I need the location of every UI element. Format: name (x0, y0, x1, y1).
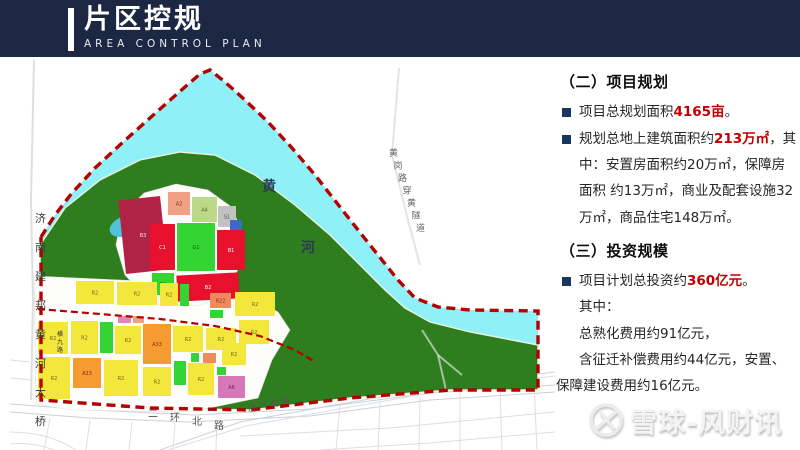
parcel-label: R2 (50, 336, 57, 342)
parcel-label: A23 (82, 371, 92, 377)
bullet-text: 。 (742, 273, 756, 289)
parcel-label: R2 (231, 352, 238, 358)
parcel-label: B3 (140, 233, 147, 239)
parcel-label: R2 (154, 380, 161, 386)
parcel-label: B1 (228, 248, 235, 254)
detail-line: 含征迁补偿费用约44亿元，安置、保障建设费用约16亿元。 (556, 347, 798, 400)
parcel-label: R2 (92, 291, 99, 297)
bullet-total-investment: 项目计划总投资约360亿元。 (562, 268, 798, 294)
map-label: 南 (35, 241, 46, 254)
map-label: 济 (35, 211, 46, 225)
section-heading-project-plan: （二）项目规划 (560, 68, 798, 97)
map-canvas: B3A2A4S1C1G1B1B2G1R2R2R2R22R2R2R2R2A33R2… (10, 60, 555, 450)
map-label: 建 (35, 269, 46, 283)
land-use-map: B3A2A4S1C1G1B1B2G1R2R2R2R22R2R2R2R2A33R2… (10, 60, 555, 450)
parcel-label: A2 (176, 202, 183, 208)
bullet-floor-area: 规划总地上建筑面积约213万㎡，其中：安置房面积约20万㎡，保障房面积 约13万… (562, 126, 798, 231)
bullet-total-area: 项目总规划面积4165亩。 (562, 99, 798, 125)
parcel-label: R2 (134, 292, 141, 298)
map-label: 广 (259, 401, 268, 412)
bridge-road (31, 60, 34, 400)
parcel-label: R2 (166, 293, 173, 299)
parcel-label: R2 (125, 338, 132, 344)
parcel-label: R2 (185, 337, 192, 343)
info-panel: （二）项目规划 项目总规划面积4165亩。 规划总地上建筑面积约213万㎡，其中… (556, 62, 798, 400)
parcel-label: R2 (118, 376, 125, 382)
parcel-label: R2 (252, 302, 259, 308)
highlight-value: 213万㎡ (714, 131, 769, 147)
bullet-square-icon (562, 108, 571, 117)
map-label: 黄 (262, 178, 276, 195)
map-label: 黄 (407, 197, 416, 209)
parcel-label: A4 (201, 208, 208, 214)
map-label: 黄 (389, 147, 398, 159)
snowball-logo-icon (586, 400, 626, 440)
parcel-label: G1 (192, 245, 199, 251)
slide: 片区控规 AREA CONTROL PLAN (0, 0, 800, 450)
map-label: 大 (35, 385, 46, 399)
map-label: 穿 (403, 185, 412, 197)
map-label: 路 (398, 172, 407, 184)
bullet-text: 规划总地上建筑面积约 (579, 131, 714, 147)
highlight-value: 4165亩 (674, 104, 725, 120)
map-label: 高 (270, 398, 279, 409)
map-label: 黄 (35, 327, 46, 341)
bullet-text: 项目计划总投资约 (579, 273, 687, 289)
header-bar: 片区控规 AREA CONTROL PLAN (0, 0, 800, 57)
watermark: 雪球-风财讯 (586, 393, 800, 447)
map-label: 道 (416, 222, 425, 234)
bullet-square-icon (562, 135, 571, 144)
map-label: 河 (35, 357, 46, 370)
parcel-G1 (217, 367, 226, 375)
parcel-G1 (100, 322, 113, 353)
parcel-label: R2 (51, 376, 58, 382)
parcel-label: S1 (224, 215, 230, 221)
title-block: 片区控规 AREA CONTROL PLAN (84, 3, 266, 50)
map-label: 速 (281, 397, 290, 407)
highlight-value: 360亿元 (687, 273, 742, 289)
parcel-G1 (210, 310, 223, 318)
map-label: 路 (214, 419, 224, 432)
parcel-R22 (203, 353, 216, 363)
parcel-G1 (191, 353, 199, 362)
bullet-text: 。 (725, 104, 739, 120)
parcel-label: R22 (216, 299, 226, 305)
parcel-label: B2 (205, 285, 212, 291)
parcel-label: R2 (81, 336, 88, 342)
map-label: 邦 (35, 299, 46, 312)
watermark-text: 雪球-风财讯 (630, 401, 782, 440)
map-label: 九 (57, 338, 63, 346)
parcel-label: R2 (218, 337, 225, 343)
title-accent-bar (68, 8, 74, 51)
detail-line: 其中： (579, 294, 798, 320)
detail-line: 总熟化费用约91亿元， (579, 321, 798, 347)
section-heading-investment: （三）投资规模 (560, 237, 798, 266)
parcel-label: A6 (228, 385, 235, 391)
bullet-text: 项目总规划面积 (579, 104, 674, 120)
map-label: 岗 (394, 161, 403, 172)
bullet-square-icon (562, 277, 571, 286)
map-label: 环 (170, 413, 180, 424)
map-label: 横 (57, 330, 63, 338)
parcel-label: A33 (152, 342, 162, 348)
map-label: 北 (192, 416, 202, 428)
map-label: 路 (57, 346, 63, 354)
parcel-G1 (174, 361, 186, 385)
parcel-label: C1 (159, 245, 166, 251)
page-subtitle: AREA CONTROL PLAN (84, 38, 266, 50)
page-title: 片区控规 (84, 3, 266, 37)
map-label: 隧 (412, 210, 421, 222)
map-label: 二 (148, 409, 158, 420)
parcel-G1 (180, 284, 189, 306)
map-label: 桥 (35, 415, 46, 428)
map-label: 河 (301, 239, 315, 256)
map-label: 济 (248, 403, 257, 414)
parcel-label: R2 (198, 377, 205, 383)
